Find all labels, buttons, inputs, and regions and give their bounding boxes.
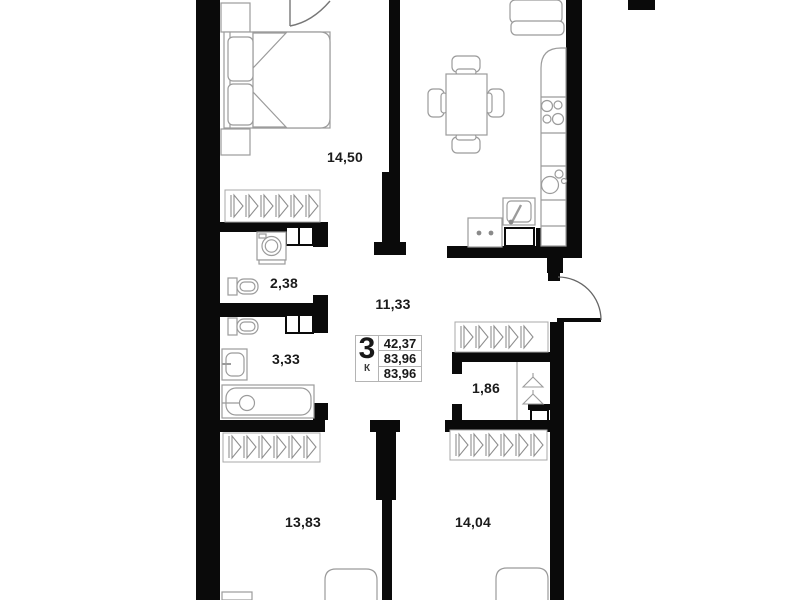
entrance-door-leaf — [557, 318, 601, 322]
rooms-letter: К — [364, 364, 370, 374]
bed-icon — [221, 3, 330, 155]
area-value: 83,96 — [379, 351, 421, 366]
washing-machine-icon — [257, 232, 286, 264]
wardrobe-hatch-hallway — [455, 322, 548, 352]
kitchen-wash-sink-icon — [503, 198, 535, 225]
kitchen-counter — [541, 48, 566, 246]
apartment-info-box: 3 К 42,37 83,96 83,96 — [355, 335, 422, 382]
area-label-room-right: 14,04 — [455, 515, 491, 529]
info-box-left-cell: 3 К — [356, 336, 379, 381]
info-box-right-cell: 42,37 83,96 83,96 — [379, 336, 421, 381]
area-label-bathroom: 3,33 — [272, 352, 300, 366]
area-label-hallway: 11,33 — [375, 297, 410, 311]
nightstand-room-left — [222, 592, 252, 600]
area-label-bedroom: 14,50 — [327, 150, 363, 164]
rooms-count: 3 — [359, 333, 376, 364]
bathtub-icon — [222, 385, 314, 418]
wardrobe-hatch-room-left — [223, 433, 320, 462]
bedroom-door-arc — [290, 0, 330, 26]
bath-sink-icon — [222, 349, 247, 380]
area-label-wardrobe: 1,86 — [472, 381, 500, 395]
kitchen-cabinet-icon — [468, 218, 502, 247]
wardrobe-hatch-room-right — [450, 430, 547, 460]
hanger-icon — [523, 373, 543, 404]
bed-icon-room-right — [496, 568, 548, 600]
kitchen-sofa-icon — [510, 0, 564, 35]
bed-icon-room-left — [325, 569, 377, 600]
floor-plan: 14,50 11,33 2,38 3,33 1,86 13,83 14,04 3… — [0, 0, 800, 600]
total-area-value: 83,96 — [379, 367, 421, 381]
entrance-door — [557, 277, 601, 322]
living-area-value: 42,37 — [379, 336, 421, 351]
area-label-wc: 2,38 — [270, 276, 298, 290]
entrance-door-arc — [558, 277, 601, 320]
wardrobe-hatch-bedroom — [225, 190, 320, 222]
bath-toilet-icon — [228, 318, 258, 335]
area-label-room-left: 13,83 — [285, 515, 321, 529]
dining-set-icon — [428, 56, 504, 153]
wc-toilet-icon — [228, 278, 258, 295]
